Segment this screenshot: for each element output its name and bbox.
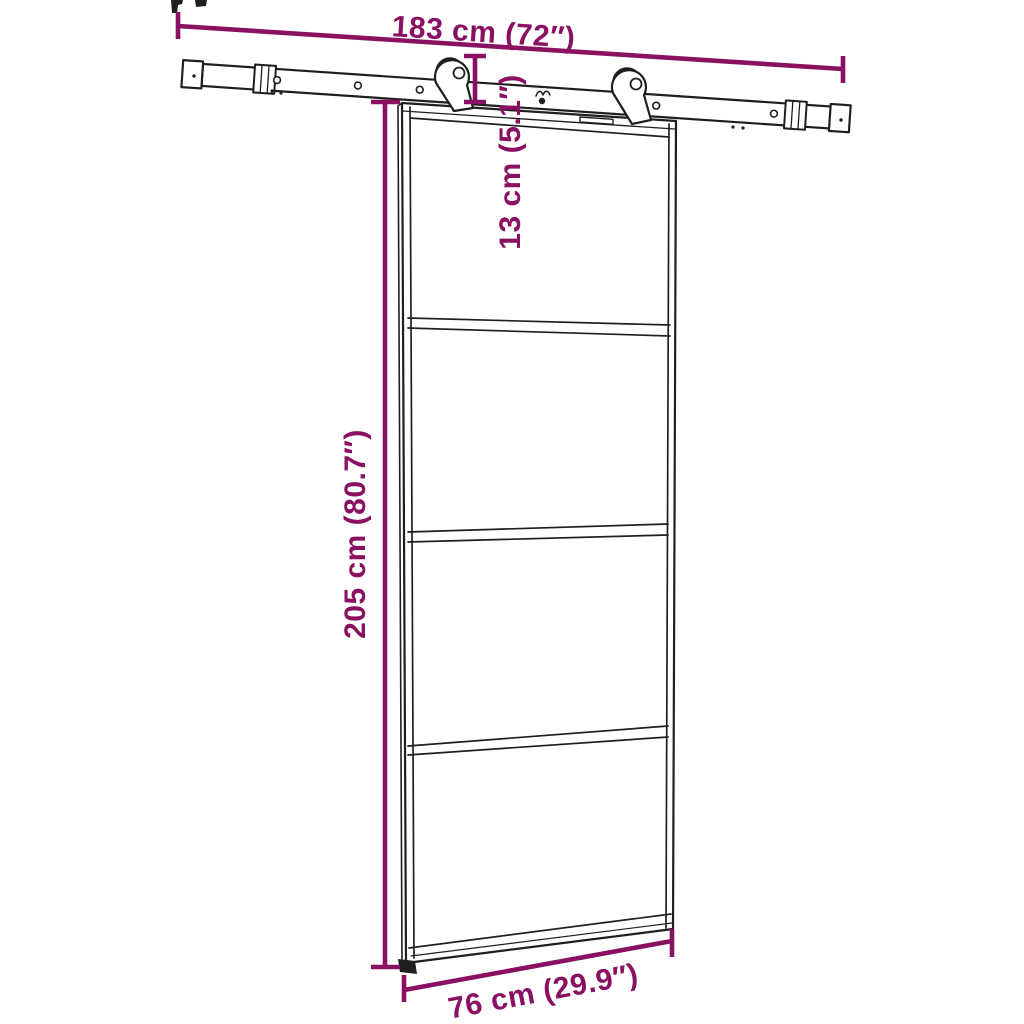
- hanger-bolt-left: [454, 68, 465, 79]
- cropped-hardware-artifact-left: [171, 0, 183, 13]
- floor-guide: [398, 959, 417, 974]
- track-end-cap-right: [829, 104, 851, 132]
- track-end-cap-left: [181, 60, 203, 88]
- label-door-width: 76 cm (29.9″): [446, 958, 641, 1024]
- cropped-hardware-artifact-right: [195, 0, 207, 7]
- dimension-door-height-line: [371, 102, 400, 967]
- track-sleeve-left: [253, 65, 276, 94]
- diagram-svg: 183 cm (72″) 13 cm (5.1″) 205 cm (80.7″)…: [0, 0, 1024, 1024]
- hanger-strap-right: [612, 70, 651, 124]
- sliding-door-dimension-diagram: 183 cm (72″) 13 cm (5.1″) 205 cm (80.7″)…: [0, 0, 1024, 1024]
- door-outline: [402, 103, 676, 963]
- track-sleeve-right: [784, 100, 807, 129]
- track-stop-dot: [539, 98, 545, 104]
- roller-hanger-right: [612, 68, 651, 124]
- label-drop-height: 13 cm (5.1″): [494, 74, 527, 249]
- hanger-bolt-right: [631, 79, 642, 90]
- door-left-depth-edge: [398, 103, 402, 960]
- label-door-height: 205 cm (80.7″): [339, 429, 372, 639]
- door-panel: [398, 103, 676, 963]
- label-track-width: 183 cm (72″): [391, 10, 577, 55]
